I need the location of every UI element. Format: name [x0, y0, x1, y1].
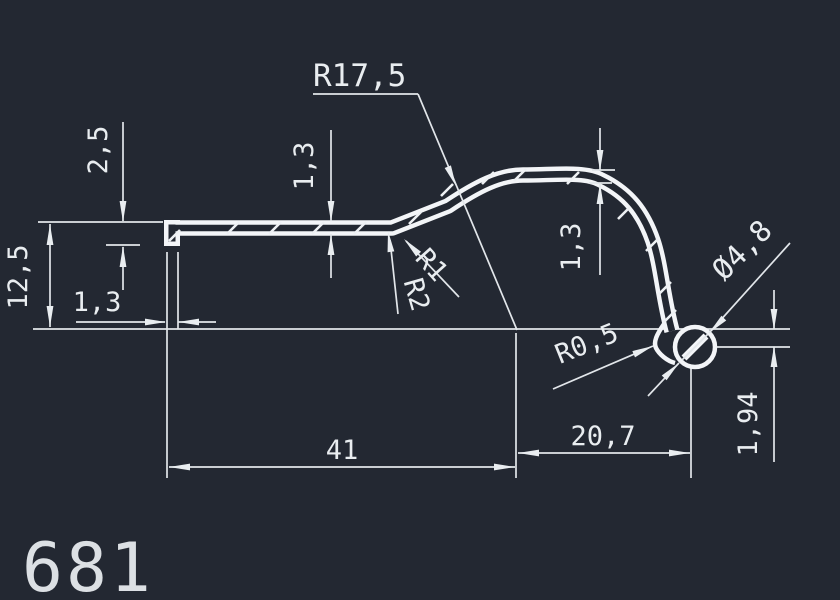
- arrow: [120, 246, 127, 267]
- cad-drawing-canvas: 2,5 12,5 1,3 1,3 1,3 R17,5 R1 R2 R0,5 Ø4…: [0, 0, 840, 600]
- arrow: [707, 316, 727, 336]
- arrow: [518, 450, 539, 457]
- arrow: [632, 343, 654, 357]
- dim-label-bead-offset: 1,94: [733, 391, 764, 456]
- arrow: [669, 450, 690, 457]
- arrow: [494, 464, 515, 471]
- arrow: [120, 201, 127, 222]
- dim-label-lip-height: 2,5: [83, 126, 114, 175]
- arrow: [47, 306, 54, 327]
- arrow: [328, 234, 335, 255]
- dim-label-lip-thickness: 1,3: [73, 287, 122, 318]
- arrow: [169, 464, 190, 471]
- dim-label-length-bead: 20,7: [570, 421, 635, 452]
- arrow: [402, 237, 421, 257]
- arrow: [47, 224, 54, 245]
- dim-label-bead-diameter: Ø4,8: [705, 213, 778, 286]
- dim-label-wall-thickness-arc: 1,3: [556, 223, 587, 272]
- dim-label-left-height: 12,5: [3, 244, 34, 309]
- cad-drawing: 2,5 12,5 1,3 1,3 1,3 R17,5 R1 R2 R0,5 Ø4…: [0, 0, 840, 600]
- part-number: 681: [22, 529, 154, 600]
- dim-label-fillet-r05: R0,5: [551, 318, 623, 371]
- dim-label-main-radius: R17,5: [313, 58, 406, 94]
- dim-label-length-main: 41: [326, 435, 359, 466]
- arrow: [771, 309, 778, 330]
- arrow: [771, 346, 778, 367]
- dim-label-wall-thickness-mid: 1,3: [289, 142, 320, 191]
- arrow: [145, 319, 166, 326]
- arrow: [328, 201, 335, 222]
- arrow: [597, 150, 604, 171]
- arrow: [178, 319, 199, 326]
